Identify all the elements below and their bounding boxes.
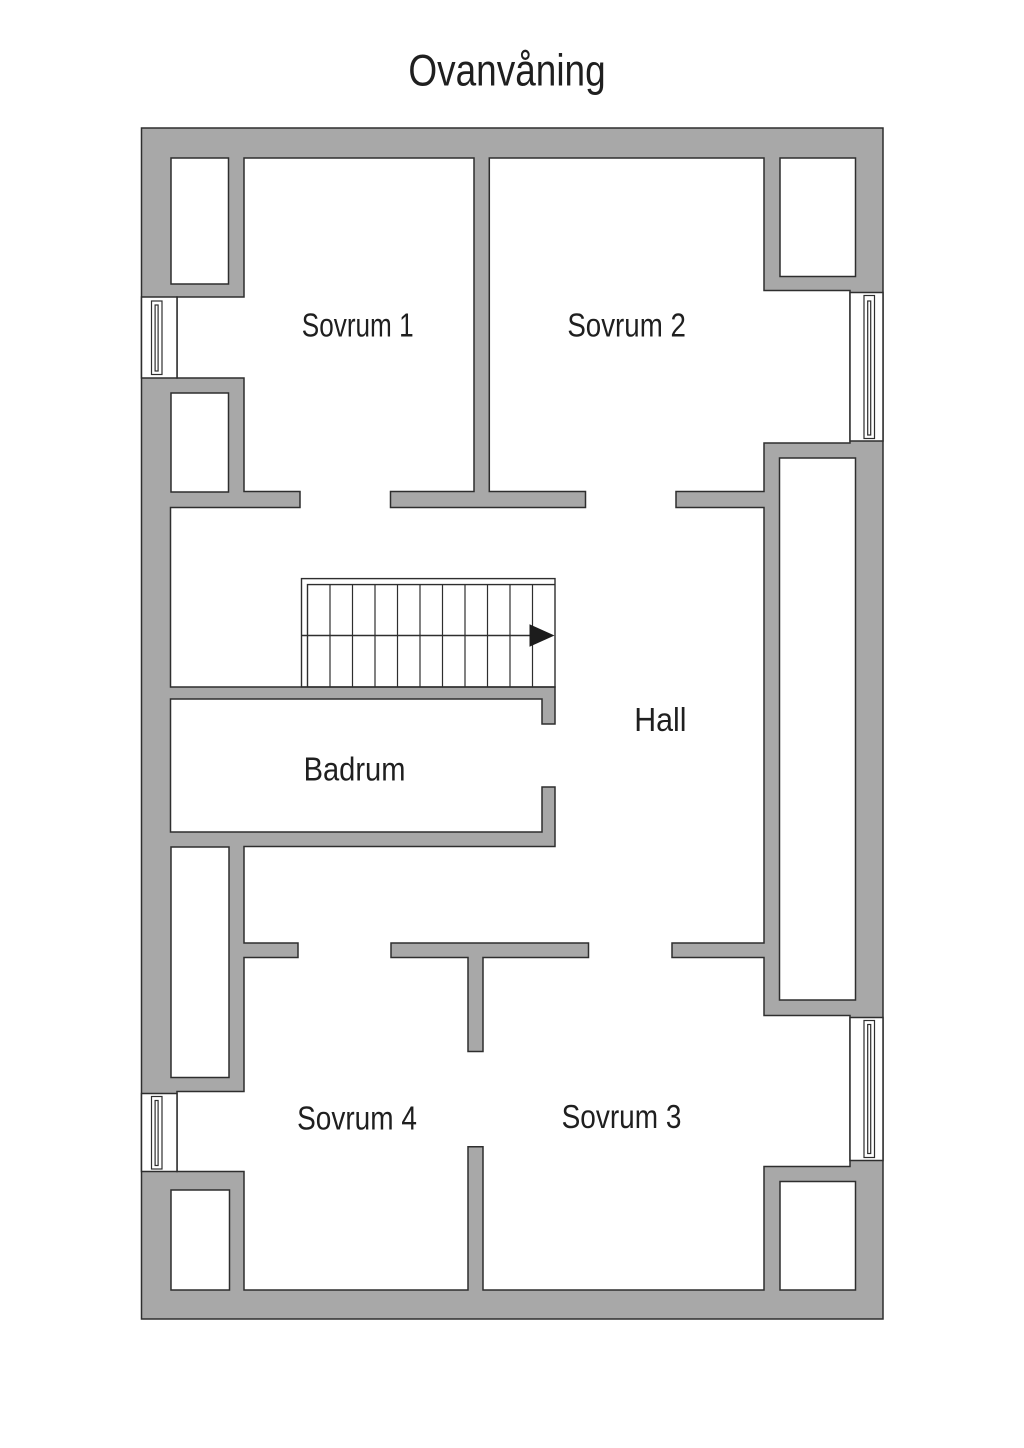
svg-text:Badrum: Badrum (304, 751, 406, 788)
svg-text:Ovanvåning: Ovanvåning (408, 45, 605, 95)
svg-text:Sovrum 2: Sovrum 2 (567, 307, 686, 344)
svg-text:Sovrum 1: Sovrum 1 (302, 308, 414, 345)
svg-text:Sovrum 4: Sovrum 4 (297, 1100, 417, 1137)
svg-text:Hall: Hall (634, 701, 686, 739)
svg-text:Sovrum 3: Sovrum 3 (562, 1099, 682, 1136)
